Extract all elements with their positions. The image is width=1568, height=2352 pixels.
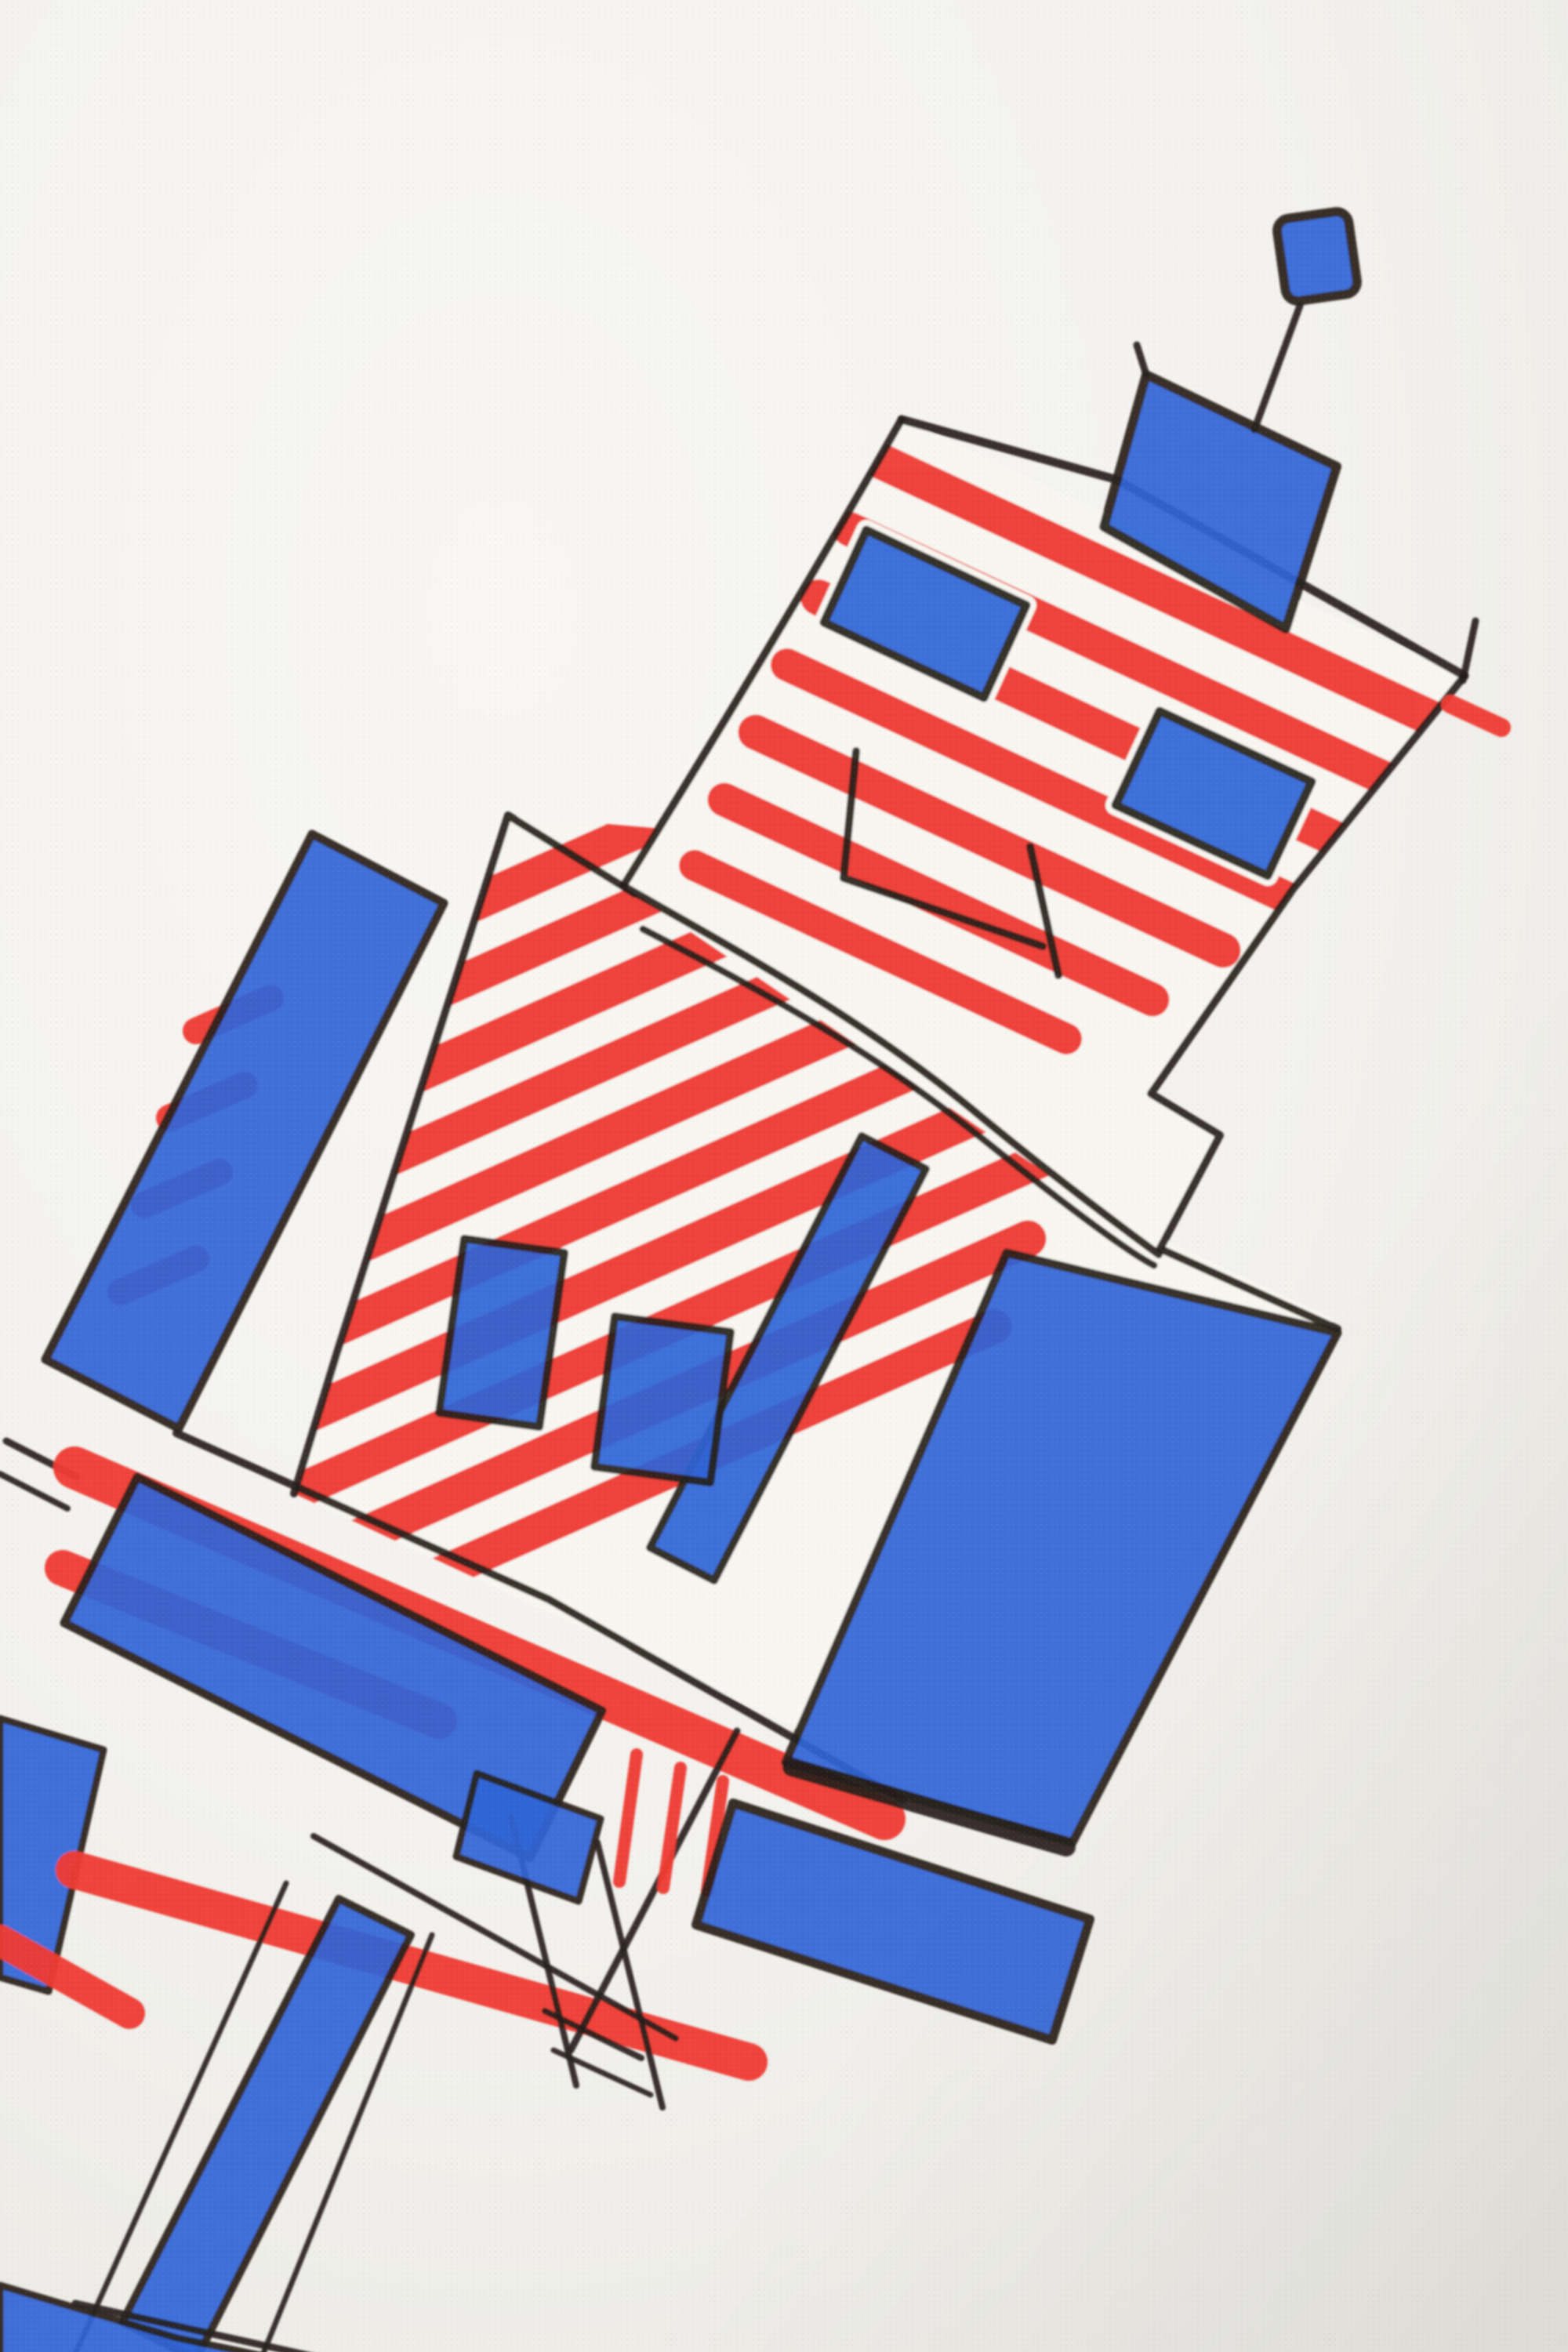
photo-stage: Close-up photograph of off-white knit fa… xyxy=(0,0,1568,2352)
corner-shading xyxy=(0,0,1568,2352)
robot-print-photo xyxy=(0,0,1568,2352)
